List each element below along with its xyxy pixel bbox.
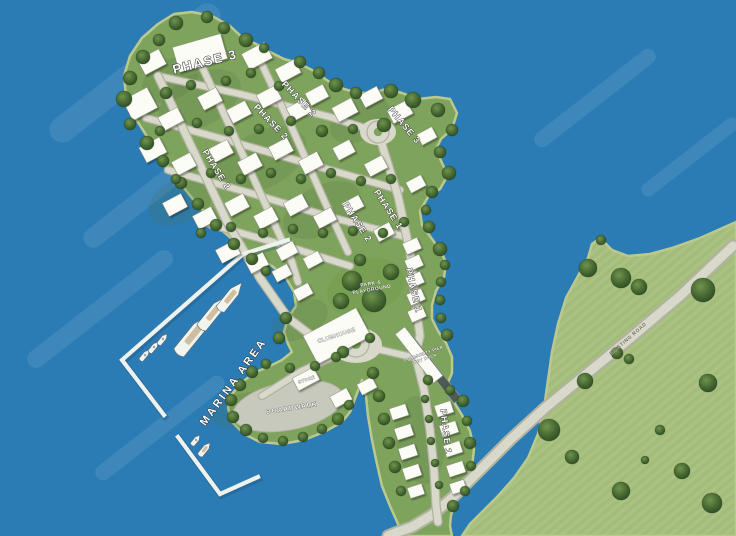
tree [441,329,453,341]
tree [464,437,476,449]
tree [116,91,132,107]
tree [426,186,438,198]
tree [228,238,240,250]
tree [373,390,385,402]
tree [246,68,256,78]
tree [160,87,172,99]
tree [310,361,320,371]
tree [226,222,236,232]
tree [436,277,446,287]
tree [266,168,276,178]
tree [261,266,271,276]
tree [702,493,722,513]
tree [239,33,253,47]
tree [384,84,398,98]
tree [285,363,295,373]
tree [579,259,597,277]
tree [577,373,593,389]
tree [377,118,391,132]
tree [294,56,306,68]
tree [124,118,136,130]
tree [378,228,388,238]
tree [436,313,446,323]
tree [427,437,435,445]
tree [447,500,459,512]
tree [342,271,362,291]
tree [246,253,258,265]
tree [259,43,269,53]
tree [383,264,399,280]
tree [273,332,285,344]
tree [313,67,325,79]
tree [386,174,396,184]
tree [288,224,298,234]
tree [565,450,579,464]
tree [171,174,181,184]
tree [227,411,239,423]
tree [433,242,447,256]
tree [317,424,327,434]
tree [435,295,445,305]
tree [365,333,375,343]
tree [538,419,560,441]
tree [316,125,328,137]
tree [196,228,206,238]
tree [169,16,183,30]
tree [440,260,450,270]
tree [611,268,631,288]
tree [218,22,230,34]
tree [378,413,390,425]
tree [445,385,455,395]
tree [298,432,308,442]
tree [423,375,433,385]
site-plan-map: PHASE 3PHASE 2PHASE 2PHASE 3PHASE 2PHASE… [0,0,736,536]
tree [157,155,169,167]
tree [278,436,288,446]
tree [286,116,296,126]
tree [331,352,341,362]
tree [221,76,231,86]
tree [421,205,431,215]
tree [425,415,433,423]
tree [396,486,406,496]
tree [466,461,476,471]
tree [691,278,715,302]
tree [318,228,328,238]
tree [153,34,165,46]
tree [332,413,344,425]
tree [201,11,213,23]
tree [186,80,196,90]
tree [348,124,358,134]
tree [446,124,458,136]
tree [431,459,439,467]
tree [641,456,649,464]
tree [431,103,445,117]
tree [356,176,366,186]
tree [136,50,150,64]
tree [434,146,446,158]
tree [329,78,343,92]
tree [192,118,202,128]
tree [442,166,456,180]
tree [236,174,246,184]
tree [596,235,606,245]
tree [326,168,336,178]
tree [389,461,401,473]
tree [367,367,379,379]
tree [296,174,306,184]
tree [280,312,292,324]
tree [383,437,395,449]
tree [261,359,271,369]
tree [354,254,366,266]
tree [210,219,222,231]
tree [460,486,470,496]
tree [192,198,204,210]
tree [423,221,435,233]
screenshot-frame: PHASE 3PHASE 2PHASE 2PHASE 3PHASE 2PHASE… [0,0,736,536]
tree [624,354,634,364]
tree [350,87,362,99]
tree [699,374,717,392]
tree [224,126,234,136]
tree [155,126,165,136]
tree [333,293,349,309]
tree [405,92,421,108]
tree [258,228,268,238]
tree [258,433,268,443]
tree [435,481,443,489]
tree [240,424,252,436]
tree [421,395,429,403]
tree [254,124,264,134]
tree [462,416,472,426]
tree [631,279,647,295]
tree [344,400,354,410]
tree [140,136,154,150]
tree [612,482,630,500]
tree [674,463,690,479]
tree [123,71,137,85]
tree [655,425,665,435]
tree [457,395,469,407]
